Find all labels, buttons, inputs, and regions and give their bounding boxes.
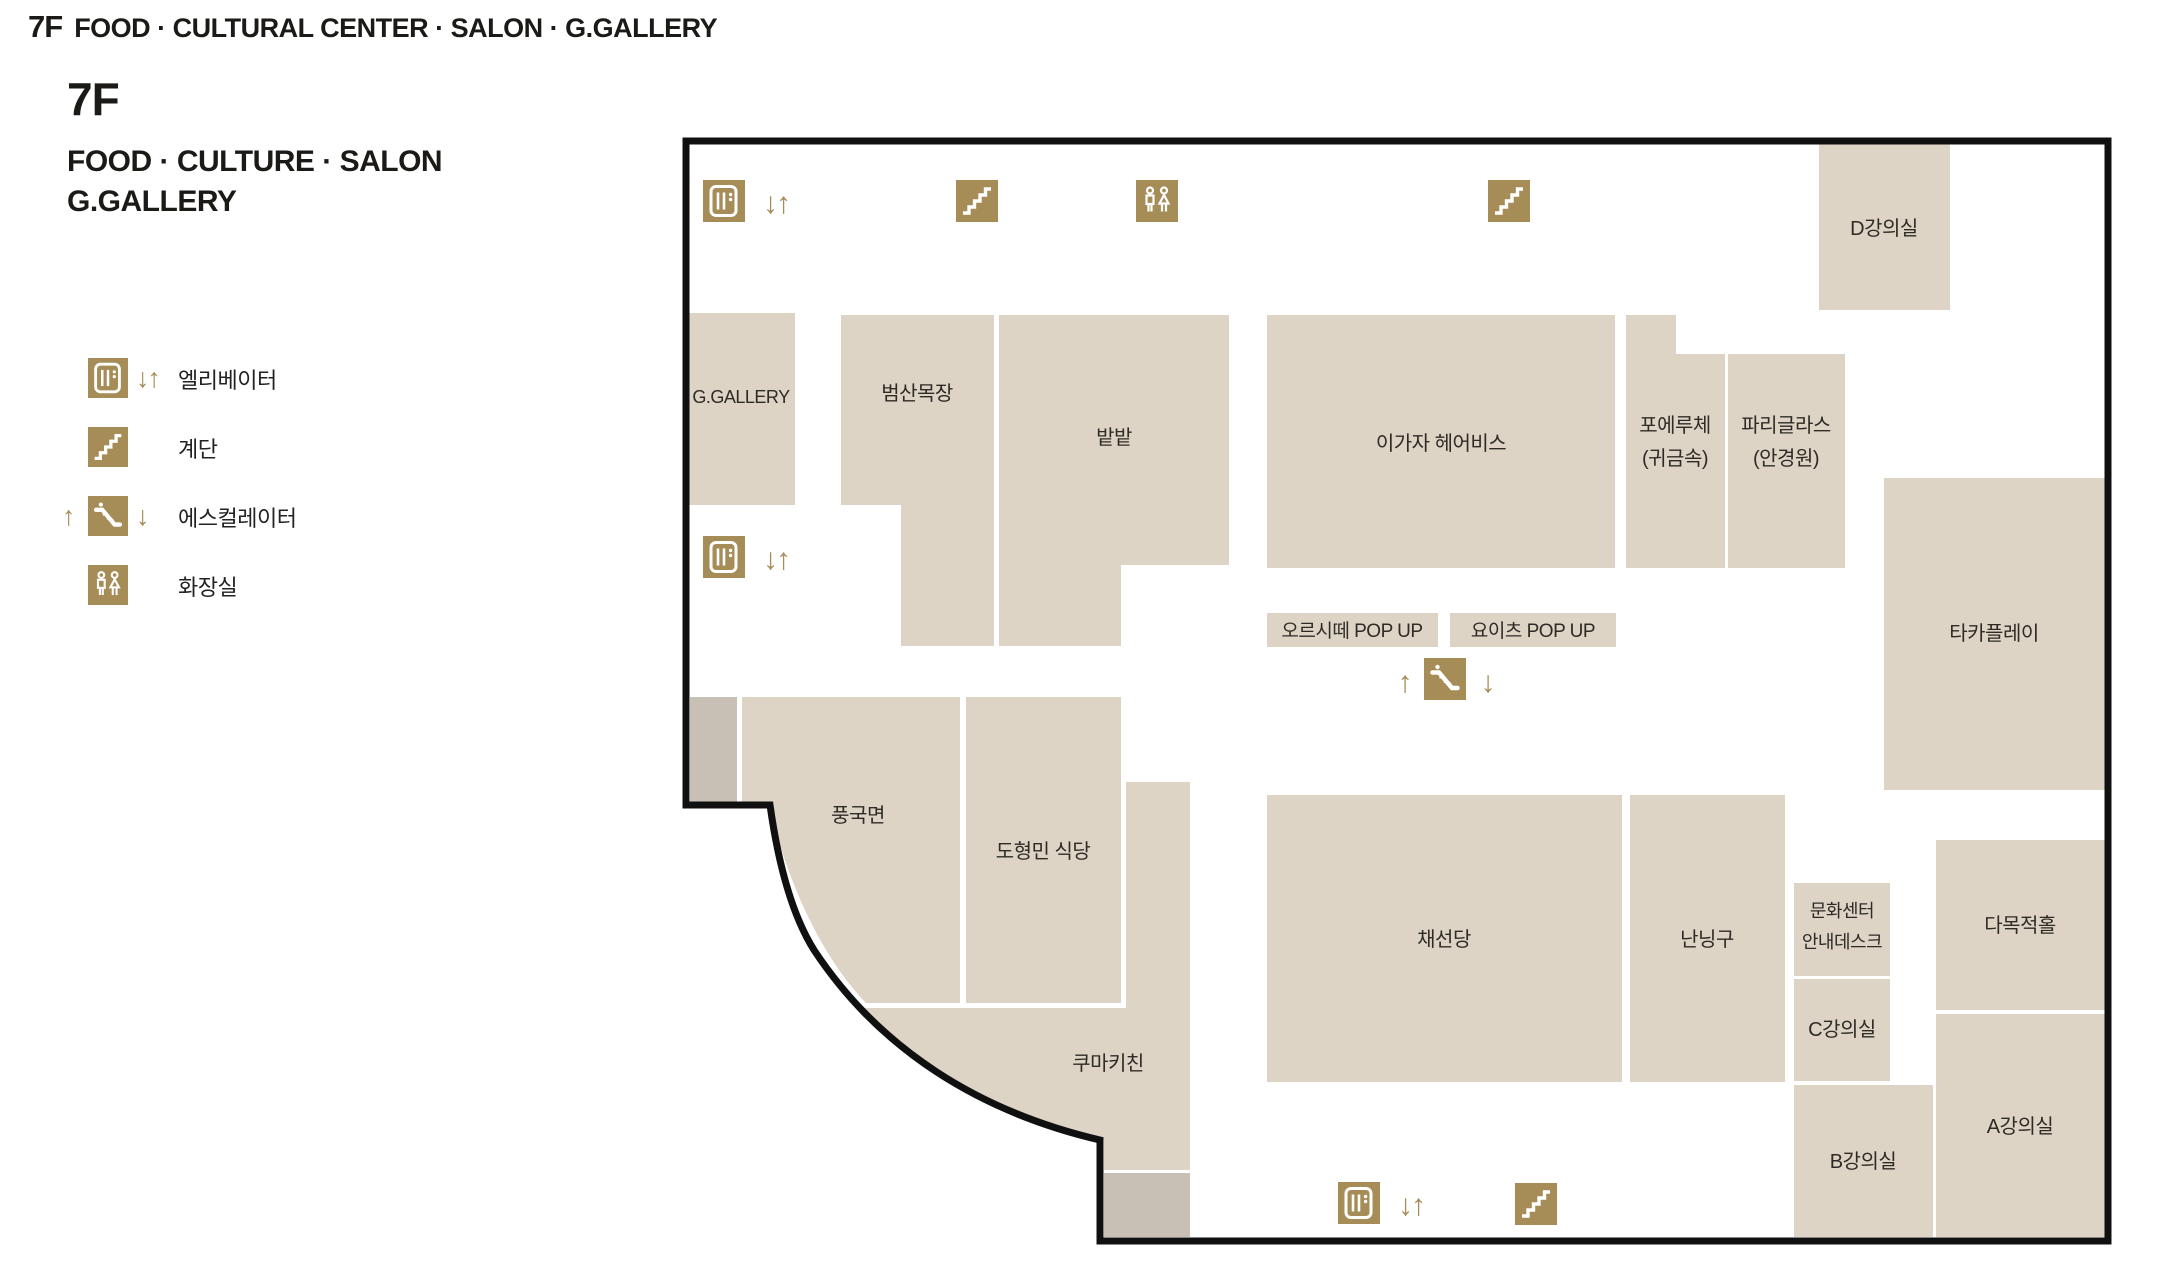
escalator-down-arrow: ↓ xyxy=(1481,666,1494,699)
room-chaesundang: 채선당 xyxy=(1267,795,1622,1082)
room-label-line1: 포에루체 xyxy=(1639,414,1711,437)
room-label-line2: 안내데스크 xyxy=(1802,932,1882,952)
room-culture-center-desk: 문화센터 안내데스크 xyxy=(1794,883,1890,976)
room-multi-purpose-hall: 다목적홀 xyxy=(1936,840,2105,1010)
room-nanningoo: 난닝구 xyxy=(1630,795,1785,1082)
service-block-bottom xyxy=(1104,1173,1190,1237)
elevator-arrows: ↓↑ xyxy=(1398,1189,1424,1222)
elevator-icon: ↓↑ xyxy=(1338,1182,1424,1224)
room-label: 쿠마키친 xyxy=(1072,1052,1144,1075)
room-label: 이가자 헤어비스 xyxy=(1376,432,1506,455)
room-label: 도형민 식당 xyxy=(996,840,1091,863)
room-label-line2: (귀금속) xyxy=(1642,447,1708,470)
room-label-line1: 파리글라스 xyxy=(1741,414,1831,437)
elevator-arrows: ↓↑ xyxy=(763,187,789,220)
room-label: B강의실 xyxy=(1830,1150,1897,1173)
restroom-icon xyxy=(1136,180,1178,222)
elevator-icon: ↓↑ xyxy=(703,536,789,578)
room-label-line2: (안경원) xyxy=(1753,447,1819,470)
room-label: 풍국면 xyxy=(831,804,885,827)
room-igaja-hairbis: 이가자 헤어비스 xyxy=(1267,315,1615,568)
elevator-icon: ↓↑ xyxy=(703,180,789,222)
room-orsitte-popup: 오르시떼 POP UP xyxy=(1267,613,1438,647)
room-b-lecture: B강의실 xyxy=(1794,1085,1933,1237)
room-batbat: 밭밭 xyxy=(999,315,1229,646)
floor-plan: D강의실 G.GALLERY 범산목장 밭밭 이가자 헤어비스 포에루체 (귀금… xyxy=(0,0,2159,1273)
room-g-gallery: G.GALLERY xyxy=(688,313,795,505)
escalator-icon: ↑ ↓ xyxy=(1398,658,1494,700)
service-block-left xyxy=(690,697,737,805)
room-label: 다목적홀 xyxy=(1984,914,2056,937)
room-label: D강의실 xyxy=(1850,217,1918,240)
room-dohyungmin: 도형민 식당 xyxy=(966,697,1121,1003)
room-d-lecture: D강의실 xyxy=(1819,142,1950,310)
room-beomsan-mokjang: 범산목장 xyxy=(841,315,994,646)
room-label: 난닝구 xyxy=(1680,928,1734,951)
elevator-arrows: ↓↑ xyxy=(763,543,789,576)
room-label: 채선당 xyxy=(1417,928,1471,951)
room-label: 타카플레이 xyxy=(1949,622,2039,645)
room-label: A강의실 xyxy=(1987,1115,2054,1138)
stairs-icon xyxy=(1488,180,1530,222)
room-pari-glass: 파리글라스 (안경원) xyxy=(1728,354,1845,568)
room-a-lecture: A강의실 xyxy=(1936,1014,2105,1237)
stairs-icon xyxy=(956,180,998,222)
room-taka-play: 타카플레이 xyxy=(1884,478,2105,790)
room-label: 밭밭 xyxy=(1096,426,1132,449)
room-label: C강의실 xyxy=(1808,1018,1876,1041)
room-label: G.GALLERY xyxy=(692,387,790,407)
room-label: 요이츠 POP UP xyxy=(1471,620,1595,642)
escalator-up-arrow: ↑ xyxy=(1398,666,1411,699)
stairs-icon xyxy=(1515,1183,1557,1225)
room-label: 오르시떼 POP UP xyxy=(1281,620,1422,642)
room-label: 범산목장 xyxy=(881,382,953,405)
room-label-line1: 문화센터 xyxy=(1810,901,1874,921)
room-c-lecture: C강의실 xyxy=(1794,979,1890,1081)
room-yoits-popup: 요이츠 POP UP xyxy=(1450,613,1616,647)
room-poeruche: 포에루체 (귀금속) xyxy=(1626,315,1725,568)
